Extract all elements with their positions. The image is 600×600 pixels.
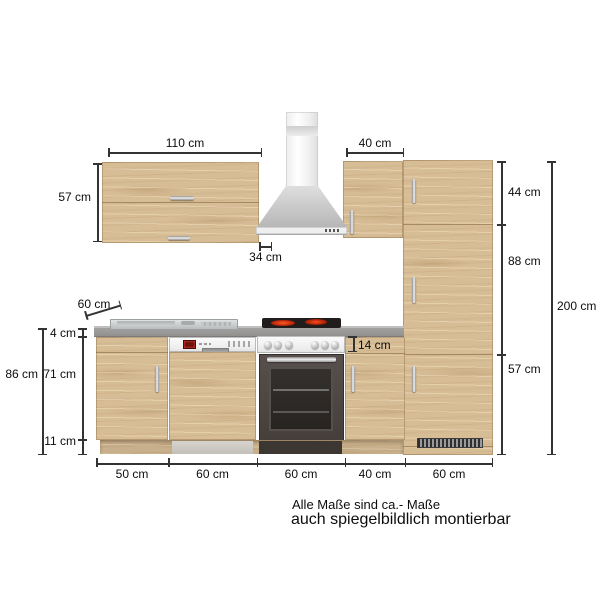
tick	[93, 163, 102, 165]
tick	[96, 458, 98, 467]
dim-width-60c-label: 60 cm	[405, 467, 493, 481]
tick	[345, 458, 347, 467]
tick	[497, 224, 506, 226]
tick	[38, 454, 47, 456]
dim-wall-left-width-label: 110 cm	[108, 136, 262, 150]
sink-basin	[117, 321, 175, 326]
sink-base-cabinet	[96, 337, 168, 440]
dim-base-inner-line	[82, 328, 84, 455]
tall-cabinet-middle-handle	[412, 277, 416, 303]
oven-knob-1	[264, 341, 272, 349]
dim-width-50-label: 50 cm	[96, 467, 168, 481]
tick	[492, 458, 494, 467]
sink-cabinet-drawer-seam	[96, 352, 168, 353]
tall-cabinet-top-handle	[412, 179, 416, 203]
base-cabinet-40-handle	[351, 366, 355, 392]
oven-rack-upper	[273, 389, 329, 391]
tick	[78, 328, 87, 330]
hood-chimney-band	[286, 126, 318, 136]
tick	[348, 336, 357, 338]
dishwasher	[169, 337, 256, 440]
dishwasher-buttons-left	[199, 343, 211, 345]
dim-base-total-line	[42, 328, 44, 455]
dishwasher-display	[183, 340, 196, 349]
dim-wall-height-label: 57 cm	[47, 190, 91, 204]
dishwasher-furniture-front	[169, 352, 256, 440]
oven-unit	[257, 336, 345, 446]
kitchen-diagram: 110 cm 40 cm 57 cm 34 cm 60 cm 4 cm 71 c…	[0, 0, 600, 600]
tick	[118, 300, 122, 309]
dim-wall-right-width-label: 40 cm	[346, 136, 404, 150]
tick	[547, 454, 556, 456]
dim-width-60a-label: 60 cm	[168, 467, 257, 481]
tick	[108, 148, 110, 157]
dim-tall-total-label: 200 cm	[557, 299, 596, 313]
dim-width-40-label: 40 cm	[345, 467, 405, 481]
tick	[348, 351, 357, 353]
hood-control-buttons	[325, 229, 341, 232]
burner-glow-left	[271, 320, 295, 326]
cooktop	[262, 318, 341, 328]
tick	[78, 336, 87, 338]
note-line1: Alle Maße sind ca.- Maße	[292, 498, 440, 512]
tall-cabinet-seam-44	[403, 224, 493, 225]
tick	[93, 241, 102, 243]
tall-cabinet-bottom-handle	[412, 366, 416, 392]
dishwasher-kickplate	[172, 441, 253, 454]
dim-tall-top-label: 44 cm	[508, 185, 541, 199]
dim-base-total-label: 86 cm	[0, 367, 38, 381]
oven-door	[259, 354, 344, 445]
tall-cabinet	[403, 160, 493, 455]
burner-glow-right	[305, 319, 327, 325]
tall-cabinet-seam-88	[403, 354, 493, 355]
dishwasher-buttons-right	[228, 341, 250, 347]
wall-cabinet-left-top-handle	[170, 196, 194, 200]
tick	[497, 354, 506, 356]
wall-cabinet-left-flap-seam	[102, 202, 259, 203]
tick	[403, 148, 405, 157]
dim-bottom-line	[96, 463, 493, 465]
dim-tall-bottom-label: 57 cm	[508, 362, 541, 376]
dim-tall-total-line	[551, 161, 553, 455]
base-cabinet-40	[345, 337, 405, 440]
oven-knob-2	[274, 341, 282, 349]
oven-rack-lower	[273, 411, 329, 413]
base-cabinet-40-drawer-seam	[345, 353, 405, 354]
tick	[257, 458, 259, 467]
oven-door-handle	[267, 357, 336, 362]
oven-window	[269, 367, 333, 431]
fridge-vent-grille	[417, 438, 483, 448]
oven-knob-5	[321, 341, 329, 349]
dim-tall-sections-line	[501, 161, 503, 455]
tick	[405, 458, 407, 467]
dim-wall-left-width-line	[108, 152, 262, 154]
tick	[78, 439, 87, 441]
wall-cabinet-right	[343, 161, 403, 238]
tick	[168, 458, 170, 467]
wall-cabinet-left	[102, 162, 259, 243]
dim-wall-right-width-line	[346, 152, 404, 154]
oven-plinth-shadow	[259, 441, 342, 454]
oven-control-panel	[257, 336, 345, 353]
sink-faucet	[181, 321, 195, 325]
wall-cabinet-right-handle	[350, 210, 354, 234]
sink-drainer	[201, 322, 231, 326]
sink	[110, 319, 238, 330]
note-line2: auch spiegelbildlich montierbar	[291, 513, 511, 527]
tick	[346, 148, 348, 157]
wall-cabinet-left-bottom-handle	[168, 236, 190, 240]
hood-canopy	[257, 186, 347, 227]
tick	[78, 454, 87, 456]
oven-knob-6	[331, 341, 339, 349]
tick	[497, 161, 506, 163]
dim-wall-height-line	[97, 163, 99, 242]
dim-drawer-label: 14 cm	[358, 338, 391, 352]
oven-knob-4	[311, 341, 319, 349]
tick	[261, 148, 263, 157]
hood-bottom-strip	[256, 227, 347, 235]
hood-chimney	[286, 112, 318, 188]
oven-knob-3	[285, 341, 293, 349]
dim-wall-depth-label: 34 cm	[238, 250, 293, 264]
tick	[38, 328, 47, 330]
tick	[497, 454, 506, 456]
dim-tall-middle-label: 88 cm	[508, 254, 541, 268]
tick	[547, 161, 556, 163]
sink-cabinet-handle	[155, 366, 159, 392]
dim-width-60b-label: 60 cm	[257, 467, 345, 481]
